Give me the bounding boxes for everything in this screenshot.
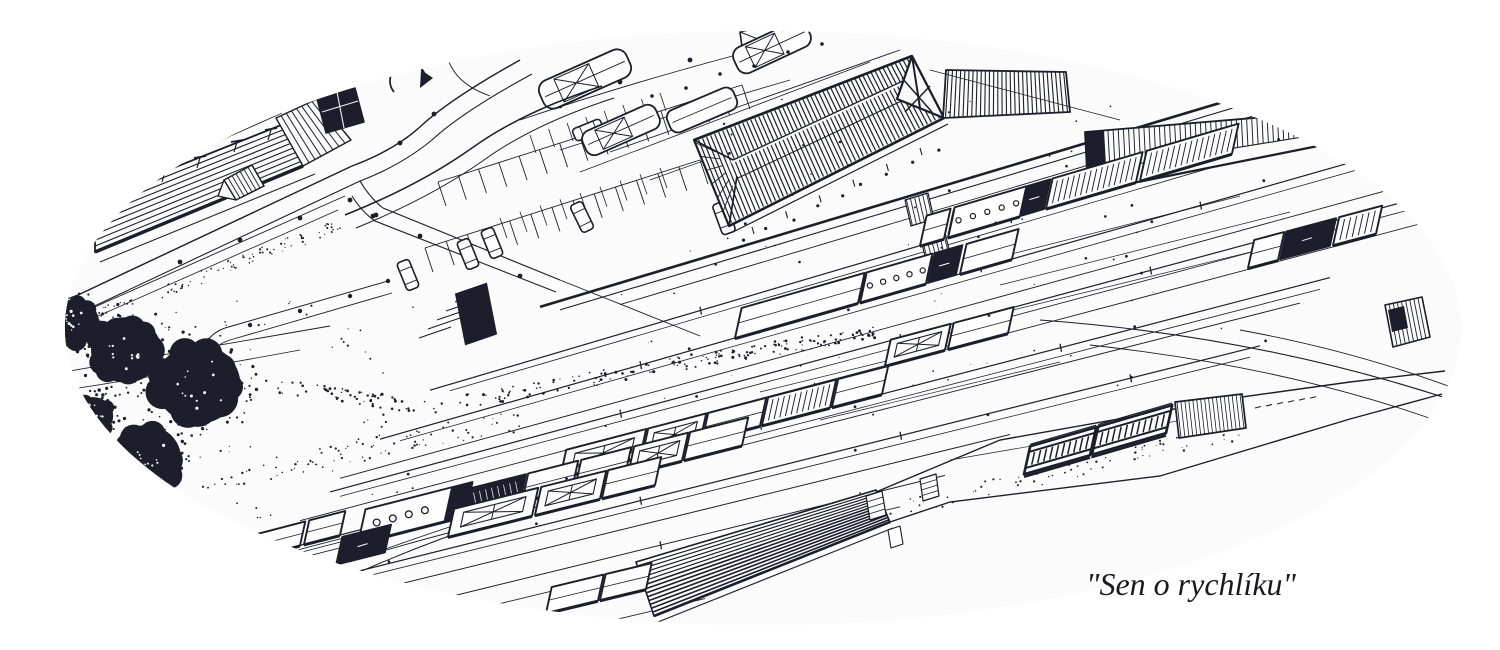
- svg-text:"Sen o rychlíku": "Sen o rychlíku": [1086, 566, 1296, 602]
